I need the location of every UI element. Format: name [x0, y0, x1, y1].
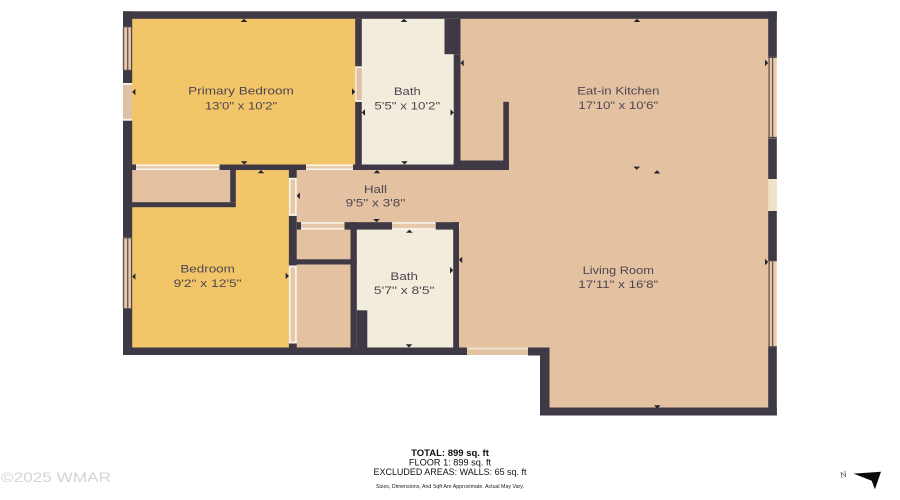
svg-text:Hall: Hall — [364, 184, 387, 196]
svg-text:Sizes, Dimensions, And Sqft Ar: Sizes, Dimensions, And Sqft Are Approxim… — [376, 484, 524, 490]
svg-text:Living Room: Living Room — [583, 265, 654, 277]
svg-text:Bedroom: Bedroom — [180, 264, 235, 276]
svg-text:©2025 WMAR: ©2025 WMAR — [1, 469, 111, 485]
svg-text:17'10" x 10'6": 17'10" x 10'6" — [578, 100, 658, 112]
svg-text:Bath: Bath — [394, 86, 421, 98]
svg-text:9'5" x 3'8": 9'5" x 3'8" — [346, 198, 406, 210]
svg-text:5'7" x 8'5": 5'7" x 8'5" — [374, 285, 435, 297]
svg-text:13'0" x 10'2": 13'0" x 10'2" — [205, 100, 277, 112]
svg-text:5'5" x 10'2": 5'5" x 10'2" — [374, 100, 440, 112]
svg-text:TOTAL: 899 sq. ft: TOTAL: 899 sq. ft — [411, 448, 489, 458]
svg-text:Eat-in Kitchen: Eat-in Kitchen — [577, 86, 659, 98]
svg-text:Primary Bedroom: Primary Bedroom — [188, 85, 294, 97]
svg-text:Bath: Bath — [390, 271, 418, 283]
svg-text:17'11" x 16'8": 17'11" x 16'8" — [578, 279, 658, 291]
svg-text:EXCLUDED AREAS: WALLS: 65 sq.: EXCLUDED AREAS: WALLS: 65 sq. ft — [374, 467, 527, 477]
svg-text:9'2" x 12'5": 9'2" x 12'5" — [174, 278, 242, 290]
